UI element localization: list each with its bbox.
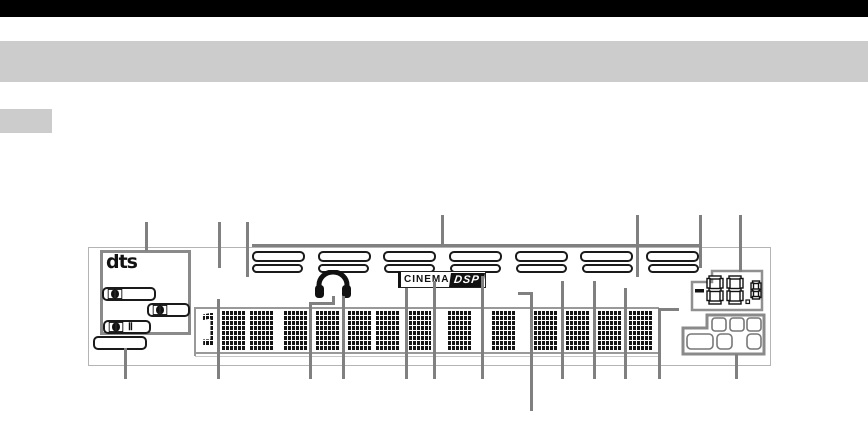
gray-band (0, 41, 868, 82)
indicator-window (582, 264, 633, 273)
dolby-double-d-icon (152, 305, 168, 315)
indicator-window (515, 251, 568, 262)
matrix-strip-bottom-border-2 (195, 356, 659, 357)
indicator-window (252, 264, 303, 273)
matrix-block (409, 311, 431, 351)
page: dts Ⅱ (0, 0, 868, 430)
callout-line-headphone (309, 302, 335, 305)
matrix-block (492, 311, 516, 351)
dolby-indicator-2 (147, 303, 190, 317)
seg-minus (695, 289, 704, 293)
callout-line (561, 281, 564, 379)
callout-bracket (252, 244, 701, 247)
empty-indicator-window (93, 336, 147, 350)
callout-line (481, 276, 484, 379)
dolby-double-d-icon (108, 322, 124, 332)
callout-line-headphone (309, 302, 312, 379)
callout-line (145, 222, 148, 251)
cinema-dsp-cinema-text: CINEMA (404, 274, 449, 285)
cinema-dsp-dsp-text: DSP (449, 273, 485, 287)
indicator-window (516, 264, 567, 273)
dolby-double-d-icon (107, 289, 123, 299)
callout-line-long (530, 292, 533, 411)
indicator-window (449, 251, 502, 262)
callout-line (218, 222, 221, 268)
matrix-block (348, 311, 372, 351)
matrix-digit-1: 1 (198, 311, 214, 351)
matrix-block (376, 311, 400, 351)
matrix-block (316, 311, 340, 351)
volume-display (688, 267, 766, 313)
callout-line (405, 288, 408, 379)
callout-line (593, 281, 596, 379)
matrix-block (222, 311, 246, 351)
matrix-block (598, 311, 622, 351)
cinema-dsp-logo: CINEMA DSP (398, 271, 486, 288)
matrix-block (566, 311, 590, 351)
dolby-digital-indicator (102, 287, 156, 301)
matrix-strip-left-border (194, 307, 196, 356)
seg-digit-8-small (751, 281, 761, 299)
matrix-block (448, 311, 472, 351)
callout-line (246, 222, 249, 277)
matrix-block (250, 311, 274, 351)
matrix-block (284, 311, 308, 351)
indicator-window (580, 251, 633, 262)
callout-line (342, 296, 345, 379)
indicator-window (318, 251, 371, 262)
matrix-digit-1-glyph: 1 (198, 311, 214, 351)
dts-logo: dts (106, 251, 137, 273)
callout-bracket-tick (441, 215, 444, 246)
callout-bracket-matrix (658, 308, 661, 379)
callout-line (636, 215, 639, 277)
callout-line (699, 215, 702, 268)
matrix-block (629, 311, 653, 351)
callout-line (217, 299, 220, 379)
speaker-indicator-box (678, 310, 768, 358)
callout-line (124, 348, 127, 379)
matrix-strip-top-border (195, 307, 659, 309)
callout-line (433, 281, 436, 379)
callout-line (739, 215, 742, 272)
side-tab (0, 109, 52, 133)
top-black-bar (0, 0, 868, 17)
indicator-window (252, 251, 305, 262)
callout-line (735, 354, 738, 379)
speaker-segments (687, 318, 761, 349)
matrix-block (534, 311, 558, 351)
indicator-row-1 (252, 251, 699, 262)
callout-line (624, 288, 627, 379)
seg-dot (746, 300, 750, 304)
dolby-prologic2-indicator: Ⅱ (103, 320, 151, 334)
indicator-window (383, 251, 436, 262)
prologic2-mark: Ⅱ (128, 322, 134, 333)
indicator-window (646, 251, 699, 262)
callout-bracket-matrix (658, 308, 679, 311)
matrix-strip-bottom-border (195, 352, 659, 354)
